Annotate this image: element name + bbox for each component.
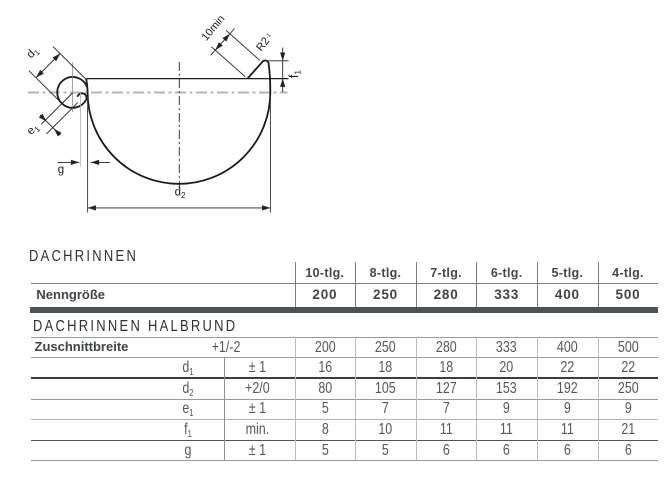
svg-text:f1: f1 (287, 70, 303, 78)
svg-text:d2: d2 (175, 187, 186, 201)
svg-text:e1: e1 (25, 121, 43, 139)
svg-text:R2-1: R2-1 (254, 30, 276, 53)
svg-text:d1: d1 (25, 44, 43, 62)
svg-text:g: g (58, 164, 64, 176)
